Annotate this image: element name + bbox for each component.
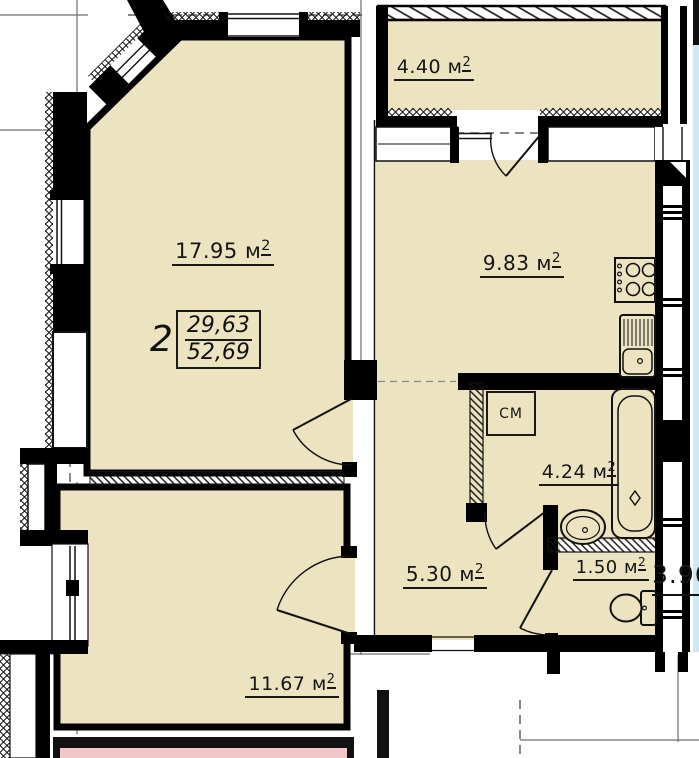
partition-core <box>354 383 374 637</box>
washing-machine-box: СМ <box>486 391 536 436</box>
toilet-symbol <box>611 591 657 625</box>
window-symbol <box>219 12 308 40</box>
adjacent-dimension-label: 3.96 <box>652 560 699 596</box>
entrance-wall <box>354 635 663 652</box>
bath-wc-partition <box>548 538 657 552</box>
washing-machine-label: СМ <box>499 406 523 422</box>
window-symbol <box>52 544 88 646</box>
rooms-count: 2 <box>150 319 173 360</box>
adjacent-apartment-pink <box>60 748 347 758</box>
kitchen-sink-symbol <box>620 315 655 377</box>
living-top-wall <box>165 12 360 40</box>
floor-plan: 17.95 м2 4.40 м2 9.83 м2 4.24 м2 5.30 м2… <box>0 0 699 758</box>
wc-area-label: 1.50 м2 <box>568 556 654 581</box>
balcony-area-label: 4.40 м2 <box>392 56 476 81</box>
hall-area-label: 5.30 м2 <box>398 562 492 589</box>
living-room-area-label: 17.95 м2 <box>168 239 278 266</box>
window-symbol <box>50 190 87 274</box>
washbasin-symbol <box>561 510 605 544</box>
living-area-total: 29,63 <box>185 314 252 341</box>
total-area: 52,69 <box>185 341 252 366</box>
hatched-partition <box>90 472 344 485</box>
area-stamp-box: 29,63 52,69 <box>176 310 261 369</box>
kitchen-area-label: 9.83 м2 <box>474 251 570 278</box>
bedroom-area-label: 11.67 м2 <box>242 673 342 698</box>
vent-symbol <box>668 161 687 180</box>
stove-symbol <box>615 258 656 302</box>
apartment-stamp: 2 29,63 52,69 <box>150 310 261 369</box>
floor-plan-drawing <box>0 0 699 758</box>
bathroom-area-label: 4.24 м2 <box>534 461 624 486</box>
